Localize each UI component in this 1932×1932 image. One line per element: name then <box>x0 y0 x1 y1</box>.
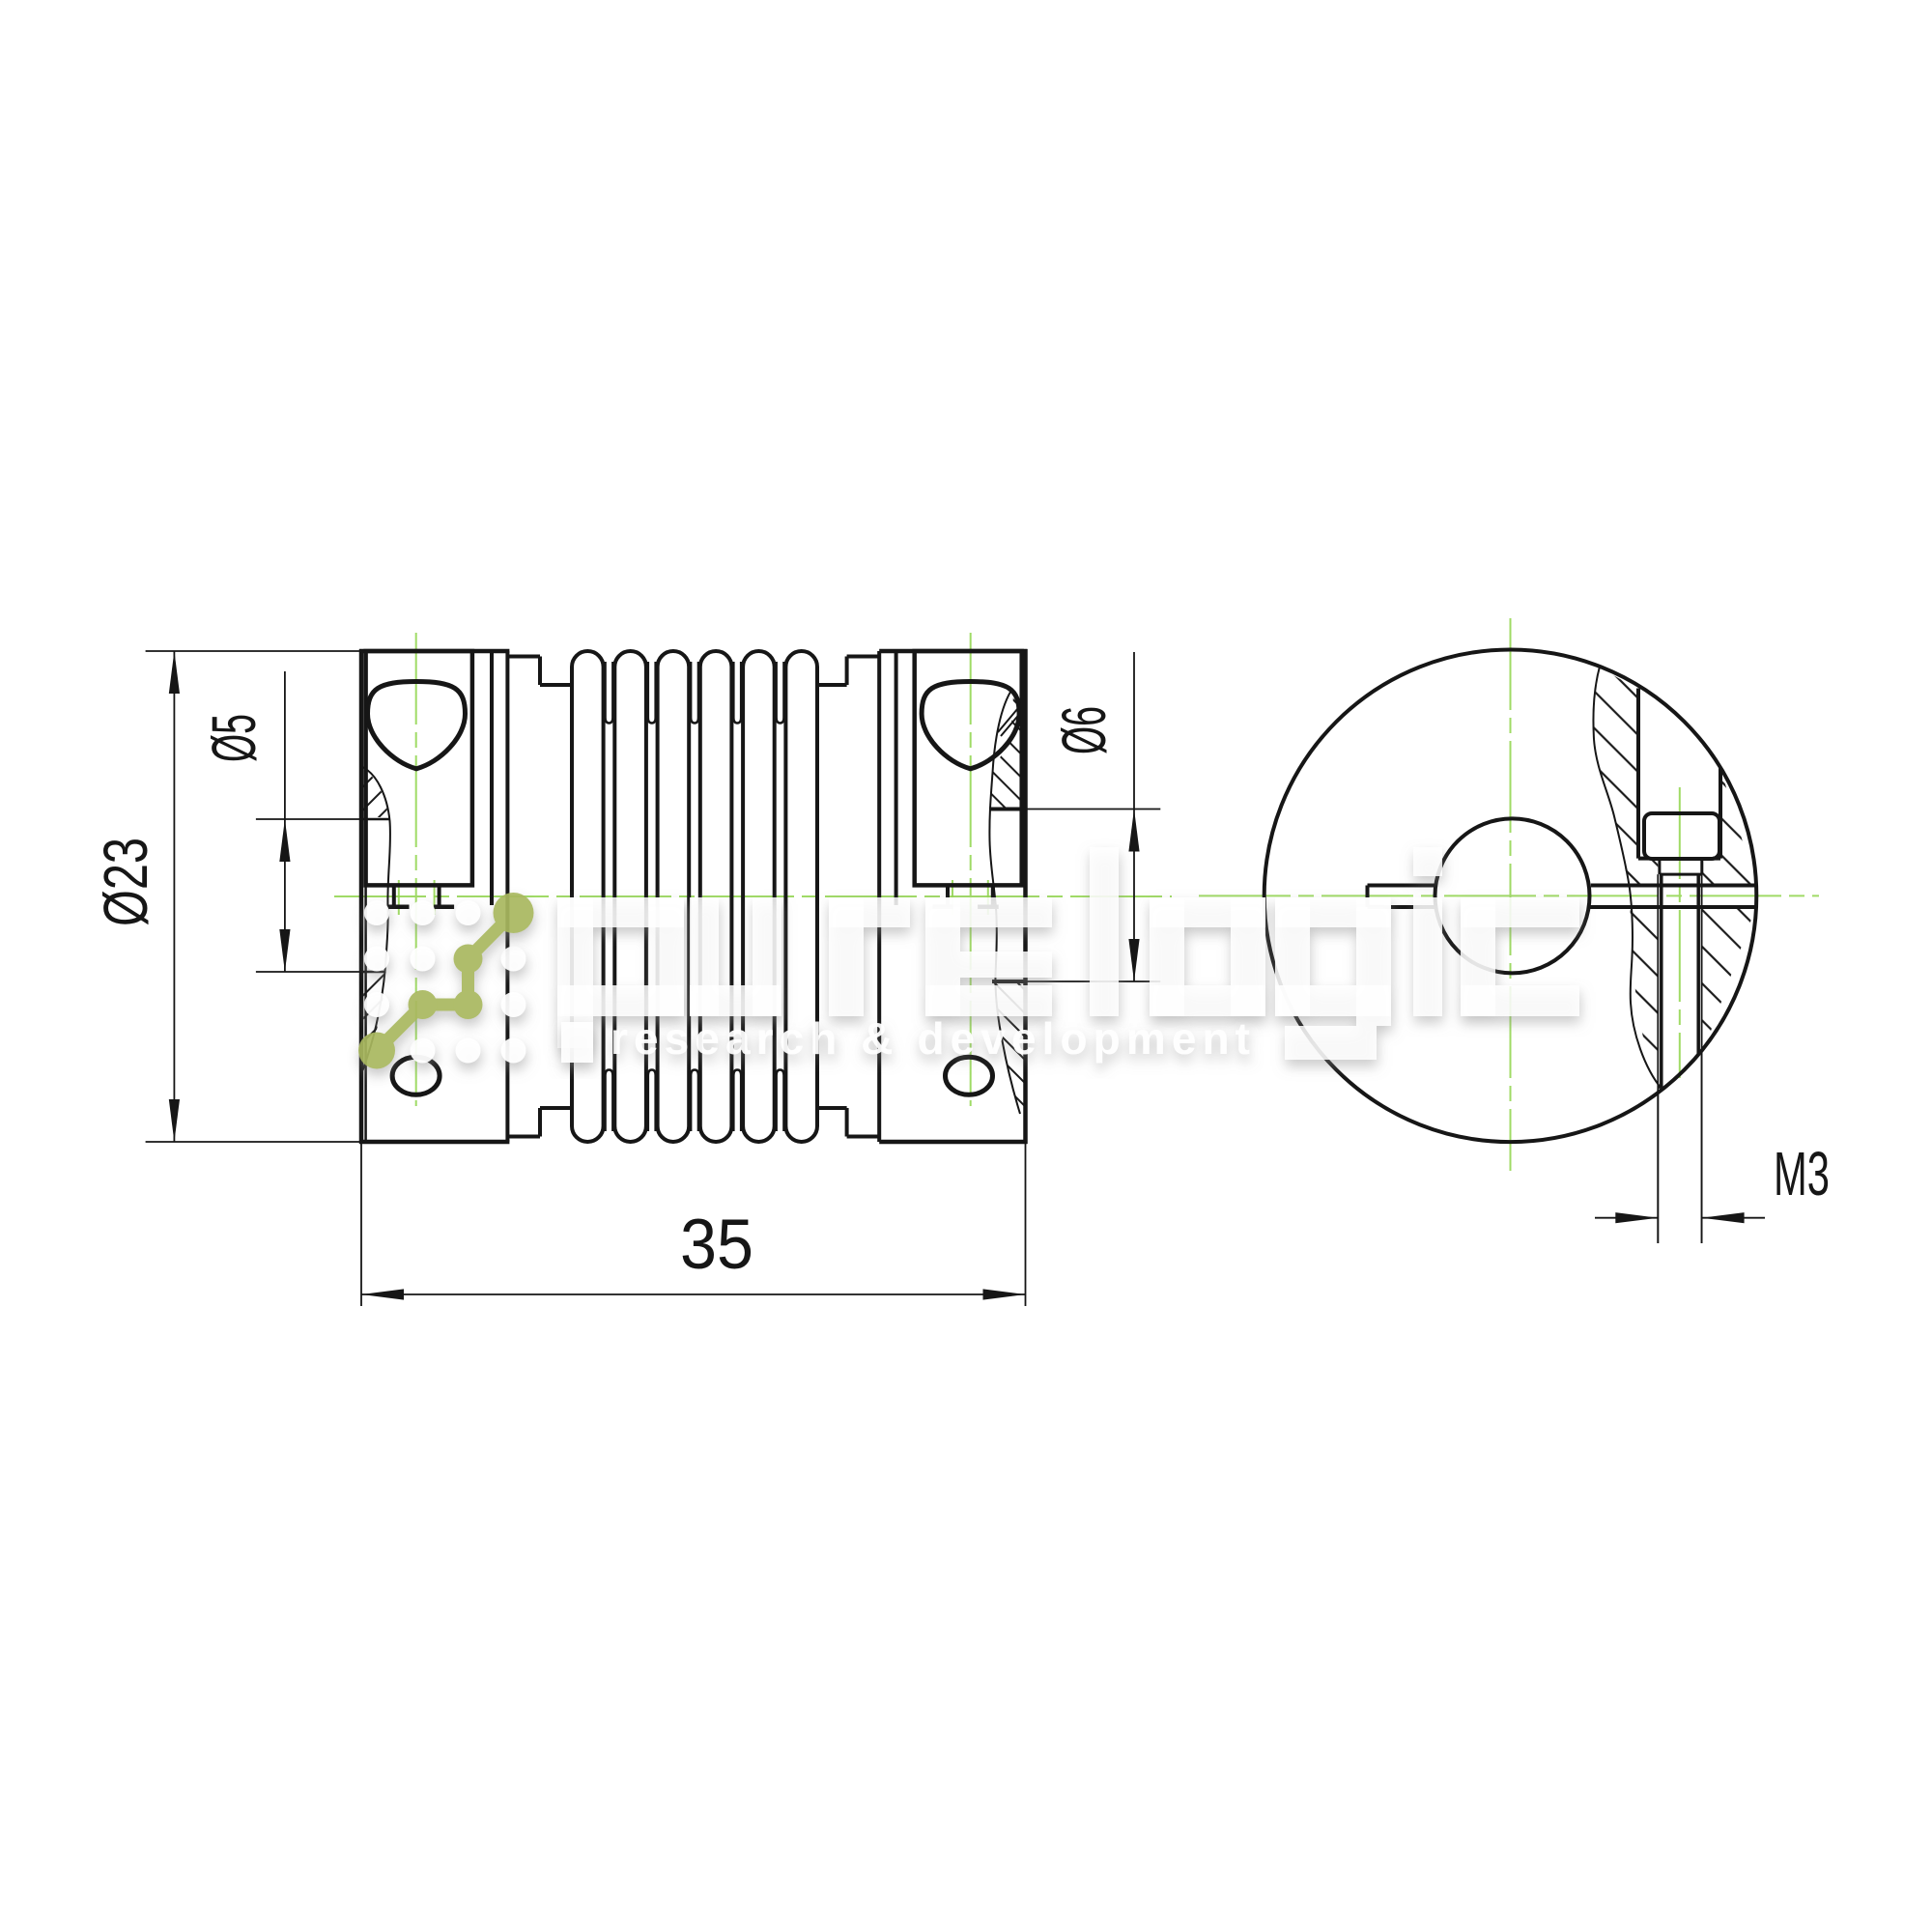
svg-text:research & development: research & development <box>611 1013 1250 1064</box>
svg-text:Ø6: Ø6 <box>1049 706 1119 754</box>
svg-text:M3: M3 <box>1774 1139 1830 1208</box>
svg-text:35: 35 <box>680 1206 753 1284</box>
svg-text:Ø23: Ø23 <box>91 838 160 926</box>
svg-text:Ø5: Ø5 <box>199 714 269 762</box>
